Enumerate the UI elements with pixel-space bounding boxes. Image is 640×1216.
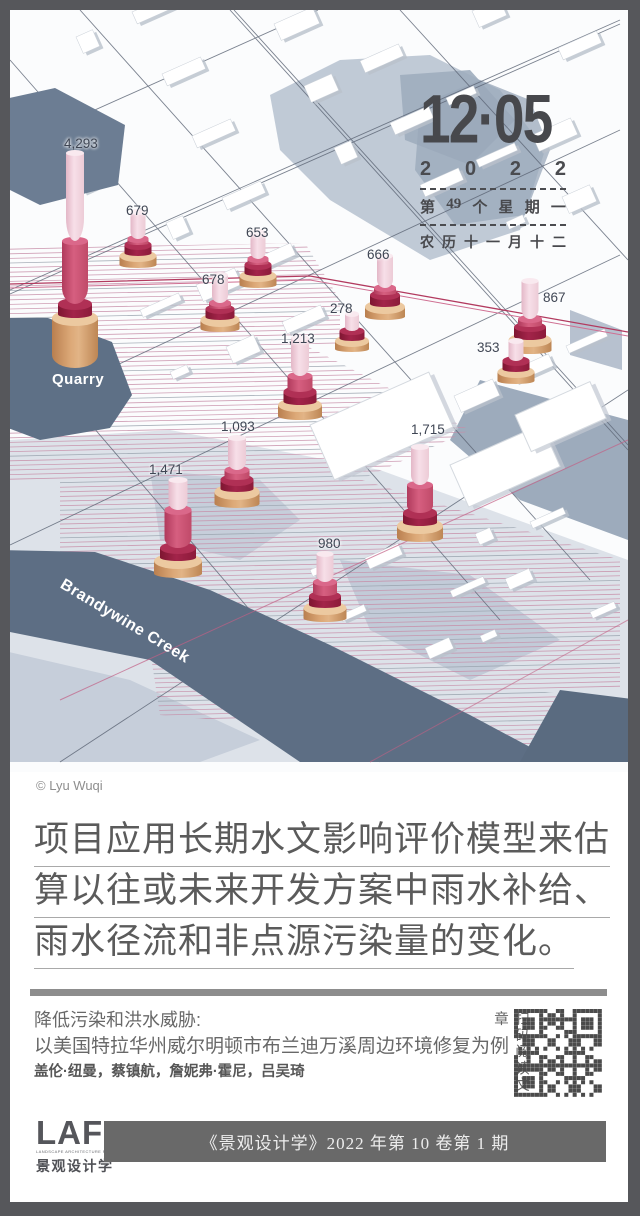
photo-credit: © Lyu Wuqi xyxy=(36,778,103,793)
frame-border xyxy=(0,0,10,1216)
lunar-line: 农 历 十 一 月 十 二 xyxy=(420,232,566,252)
week-token: 第 xyxy=(420,196,435,217)
year-digit: 2 xyxy=(555,158,566,181)
article-title-line1: 降低污染和洪水威胁: xyxy=(34,1006,201,1032)
journal-issue-text: 《景观设计学》2022 年第 10 卷第 1 期 xyxy=(201,1129,510,1154)
lunar-token: 一 xyxy=(486,232,500,252)
year-digit: 2 xyxy=(420,158,431,181)
lunar-token: 二 xyxy=(552,232,566,252)
frame-border xyxy=(0,0,640,10)
lunar-token: 十 xyxy=(530,232,544,252)
frame-border xyxy=(0,1202,640,1216)
qr-code xyxy=(514,1009,602,1097)
calendar-poster: Quarry Brandywine Creek 4,29367965367866… xyxy=(0,0,640,1216)
date-day: 12·05 xyxy=(420,86,559,154)
week-token: 期 xyxy=(525,196,540,217)
section-divider xyxy=(30,989,607,996)
week-token: 星 xyxy=(499,196,514,217)
lunar-token: 月 xyxy=(508,232,522,252)
dashed-separator xyxy=(420,224,566,226)
article-authors: 盖伦·纽曼，蔡镇航，詹妮弗·霍尼，吕吴琦 xyxy=(34,1060,305,1081)
article-title-line2: 以美国特拉华州威尔明顿市布兰迪万溪周边环境修复为例 xyxy=(34,1031,509,1058)
summary-line: 项目应用长期水文影响评价模型来估 xyxy=(34,822,610,867)
year-digit: 2 xyxy=(510,158,521,181)
date-year: 2 0 2 2 xyxy=(420,158,566,181)
week-token: 49 xyxy=(446,196,461,217)
week-token: 一 xyxy=(551,196,566,217)
summary-paragraph: 项目应用长期水文影响评价模型来估 算以往或未来开发方案中雨水补给、 雨水径流和非… xyxy=(34,822,610,975)
summary-line: 算以往或未来开发方案中雨水补给、 xyxy=(34,873,610,918)
date-block: 12·05 2 0 2 2 第 49 个 星 期 一 农 历 十 一 月 十 二 xyxy=(420,86,566,252)
year-digit: 0 xyxy=(465,158,476,181)
lunar-token: 十 xyxy=(464,232,478,252)
journal-issue-bar: 《景观设计学》2022 年第 10 卷第 1 期 xyxy=(104,1121,606,1162)
lunar-token: 农 xyxy=(420,232,434,252)
summary-line: 雨水径流和非点源污染量的变化。 xyxy=(34,924,574,969)
week-token: 个 xyxy=(472,196,487,217)
frame-border xyxy=(628,0,640,1216)
dashed-separator xyxy=(420,188,566,190)
lunar-token: 历 xyxy=(442,232,456,252)
week-line: 第 49 个 星 期 一 xyxy=(420,196,566,217)
